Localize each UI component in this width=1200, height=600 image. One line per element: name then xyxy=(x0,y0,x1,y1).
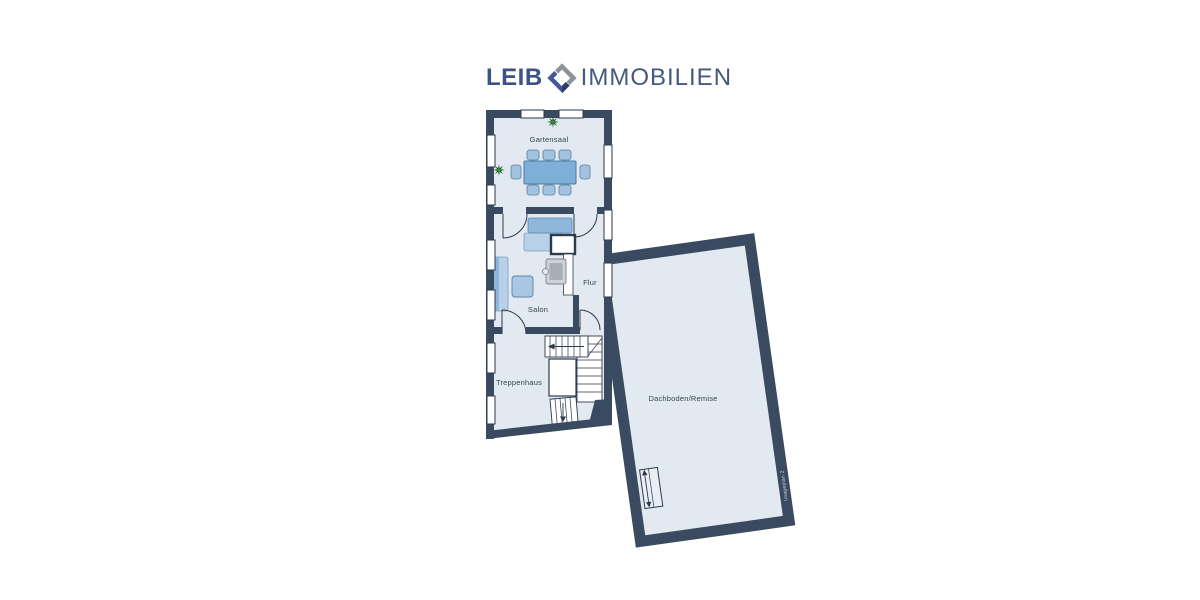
dining-table-icon xyxy=(524,161,576,184)
sofa-back-icon xyxy=(528,218,572,233)
window xyxy=(487,185,495,205)
chimney-block xyxy=(551,235,575,254)
room-label-flur: Flur xyxy=(583,278,597,287)
room-label-gartensaal: Gartensaal xyxy=(530,135,569,144)
window xyxy=(604,263,612,297)
chair-icon xyxy=(527,185,539,195)
plant-icon xyxy=(547,116,559,128)
chair-icon xyxy=(511,165,521,179)
chair-icon xyxy=(559,150,571,160)
window xyxy=(604,145,612,178)
plant-icon xyxy=(493,164,505,176)
stair-void xyxy=(549,359,576,396)
window xyxy=(487,343,495,373)
window xyxy=(487,135,495,167)
stove-icon xyxy=(543,259,567,284)
window xyxy=(487,290,495,320)
window xyxy=(559,110,583,118)
dachboden-walls xyxy=(601,239,789,541)
chair-icon xyxy=(559,185,571,195)
window xyxy=(521,110,544,118)
chair-icon xyxy=(543,185,555,195)
room-label-dachboden-remise: Dachboden/Remise xyxy=(648,394,717,403)
floorplan-page: LEIB IMMOBILIEN Imageplan 2 xyxy=(0,0,1200,600)
floorplan-drawing: Imageplan 2 xyxy=(0,0,1200,600)
room-dachboden-remise: Imageplan 2 xyxy=(601,239,793,542)
chair-icon xyxy=(527,150,539,160)
window xyxy=(487,396,495,424)
room-label-treppenhaus: Treppenhaus xyxy=(496,378,542,387)
chair-icon xyxy=(580,165,590,179)
window xyxy=(604,210,612,240)
side-table-icon xyxy=(512,276,533,297)
chair-icon xyxy=(543,150,555,160)
window xyxy=(487,240,495,270)
room-label-salon: Salon xyxy=(528,305,548,314)
